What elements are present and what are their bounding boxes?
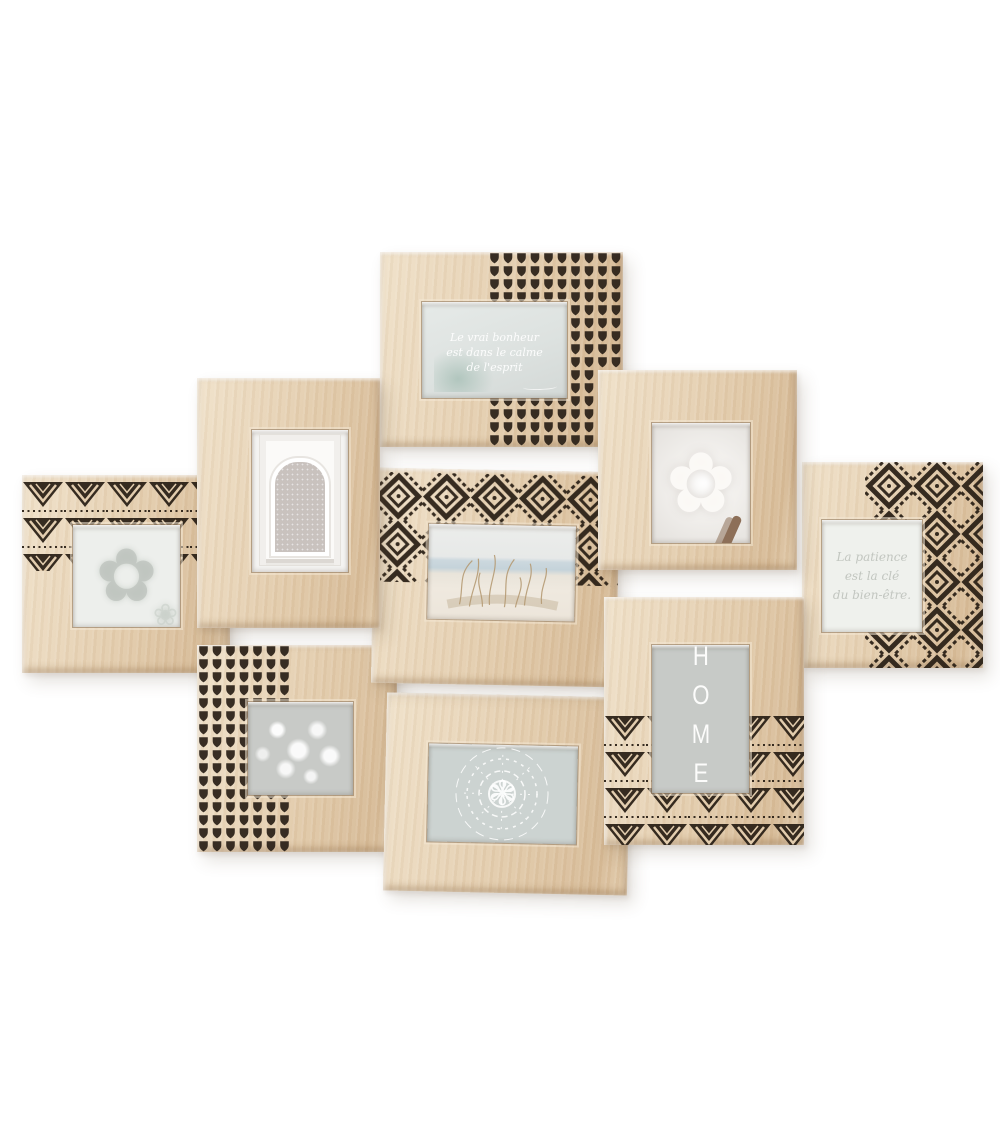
photo-babys-breath bbox=[248, 702, 353, 795]
quote-line: est dans le calme bbox=[446, 345, 543, 360]
dune-grass-strokes bbox=[427, 524, 576, 622]
photo-faint-mandala: ✿ ❀ bbox=[73, 525, 180, 627]
photo-patience-print: La patience est la clé du bien-être. bbox=[822, 520, 922, 632]
photo-dune-grass bbox=[427, 524, 576, 622]
mandala-center-icon: ❃ bbox=[488, 774, 517, 815]
patience-text: La patience est la clé du bien-être. bbox=[822, 520, 922, 632]
photo-white-flower: ✿ bbox=[652, 423, 750, 543]
flower-bloom-icon: ✿ bbox=[652, 423, 750, 543]
patience-line: du bien-être. bbox=[833, 586, 911, 605]
frame-beach bbox=[371, 468, 620, 688]
frame-bottom-mandala: ❃ bbox=[383, 692, 631, 895]
mandala-motif-icon: ✿ bbox=[95, 539, 157, 613]
frame-moroccan-arch bbox=[197, 378, 380, 628]
photo-ornate-mandala: ❃ bbox=[427, 743, 578, 844]
arch-doorway bbox=[271, 458, 329, 556]
product-photo-collage-frame: ✿ ❀ bbox=[0, 0, 1000, 1143]
arch-step bbox=[266, 559, 334, 563]
frame-white-flower: ✿ bbox=[598, 370, 797, 570]
mandala-motif-small-icon: ❀ bbox=[153, 601, 178, 627]
frame-patience: La patience est la clé du bien-être. bbox=[802, 462, 983, 668]
frame-babys-breath bbox=[197, 645, 397, 852]
patience-line: est la clé bbox=[845, 567, 899, 586]
photo-moroccan-arch bbox=[252, 430, 348, 572]
patience-line: La patience bbox=[836, 548, 907, 567]
quote-line: de l'esprit bbox=[467, 360, 523, 375]
frame-quote: Le vrai bonheur est dans le calme de l'e… bbox=[380, 252, 623, 447]
home-word: HOME bbox=[688, 645, 713, 793]
frame-home: HOME bbox=[604, 597, 804, 845]
quote-line: Le vrai bonheur bbox=[450, 330, 539, 345]
photo-quote-print: Le vrai bonheur est dans le calme de l'e… bbox=[422, 302, 567, 398]
photo-home-typography: HOME bbox=[652, 645, 749, 793]
